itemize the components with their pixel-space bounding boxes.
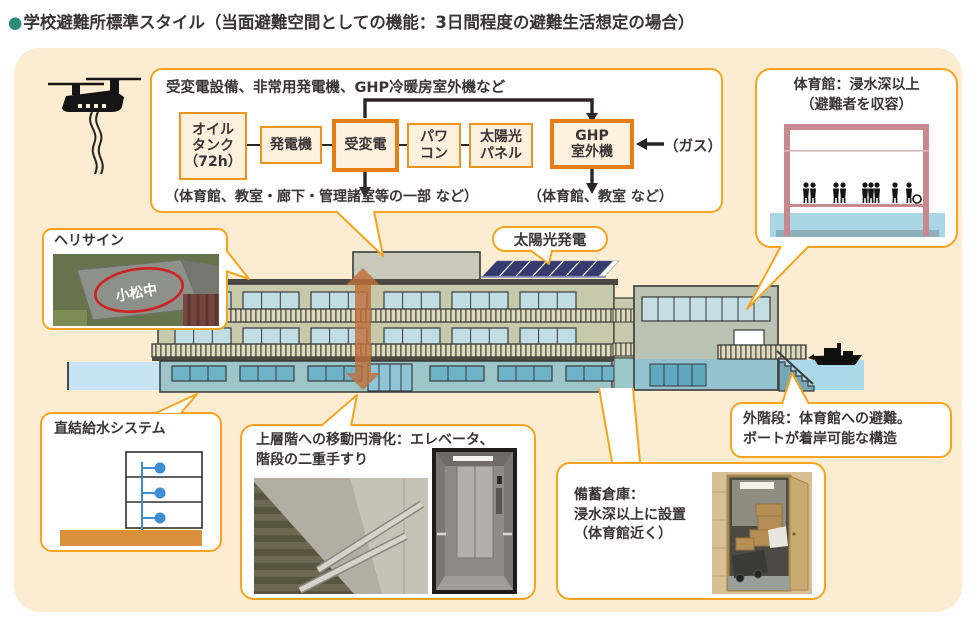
flow-box-solar-panel: 太陽光 パネル: [469, 123, 533, 168]
helisign-photo: 小松中: [53, 254, 219, 326]
helicopter-icon: [48, 79, 141, 174]
storage-room-photo: [712, 472, 812, 594]
flow-box-power-conditioner: パワ コン: [407, 123, 461, 168]
gym-callout: 体育館：浸水深以上 （避難者を収容）: [755, 68, 958, 248]
infographic-school-shelter: ●学校避難所標準スタイル（当面避難空間としての機能：3日間程度の避難生活想定の場…: [0, 0, 976, 626]
elevator-photo: [432, 448, 517, 594]
storage-title: 備蓄倉庫： 浸水深以上に設置 （体育館近く）: [574, 486, 686, 545]
solar-power-label: 太陽光発電: [514, 229, 587, 250]
gym-window-row: [642, 297, 770, 321]
external-stairs-callout: 外階段：体育館への避難。 ボートが着岸可能な構造: [730, 402, 952, 458]
flow-box-substation: 受変電: [332, 119, 399, 172]
storage-callout: 備蓄倉庫： 浸水深以上に設置 （体育館近く）: [556, 462, 826, 600]
gymnasium-building: [613, 286, 806, 390]
gym-callout-title: 体育館：浸水深以上 （避難者を収容）: [757, 76, 956, 115]
balcony-railing-2f: [152, 344, 618, 357]
flow-caption-right: （体育館、教室 など）: [528, 186, 673, 206]
stairs-handrail-photo: [254, 478, 428, 594]
gym-cross-section-illustration: [768, 116, 947, 244]
flow-box-oil-tank: オイル タンク （72h）: [179, 112, 247, 180]
solar-panels: [481, 261, 619, 277]
gas-label: （ガス）: [664, 135, 722, 156]
water-supply-diagram: [56, 446, 206, 548]
flow-box-ghp-outdoor-unit: GHP 室外機: [550, 119, 634, 169]
solar-power-bubble: 太陽光発電: [492, 226, 608, 252]
mobility-callout: 上層階への移動円滑化：エレベータ、 階段の二重手すり: [240, 424, 536, 600]
water-supply-title: 直結給水システム: [54, 420, 166, 440]
helisign-label: ヘリサイン: [54, 232, 124, 252]
water-supply-callout: 直結給水システム: [40, 412, 222, 552]
flow-box-generator: 発電機: [260, 126, 322, 164]
gym-deck-railing: [718, 345, 806, 359]
evacuees-silhouettes: [803, 182, 921, 203]
boat-icon: [808, 343, 862, 365]
gym-flooded-windows: [650, 364, 706, 386]
external-stairs-title: 外階段：体育館への避難。 ボートが着岸可能な構造: [732, 410, 911, 449]
flow-caption-left: （体育館、教室・廊下・管理諸室等の一部 など）: [165, 186, 478, 206]
helisign-callout: ヘリサイン 小松中: [42, 228, 228, 330]
power-flowchart-callout: 受変電設備、非常用発電機、GHP冷暖房室外機など オイル タンク （72h） 発…: [150, 68, 723, 213]
